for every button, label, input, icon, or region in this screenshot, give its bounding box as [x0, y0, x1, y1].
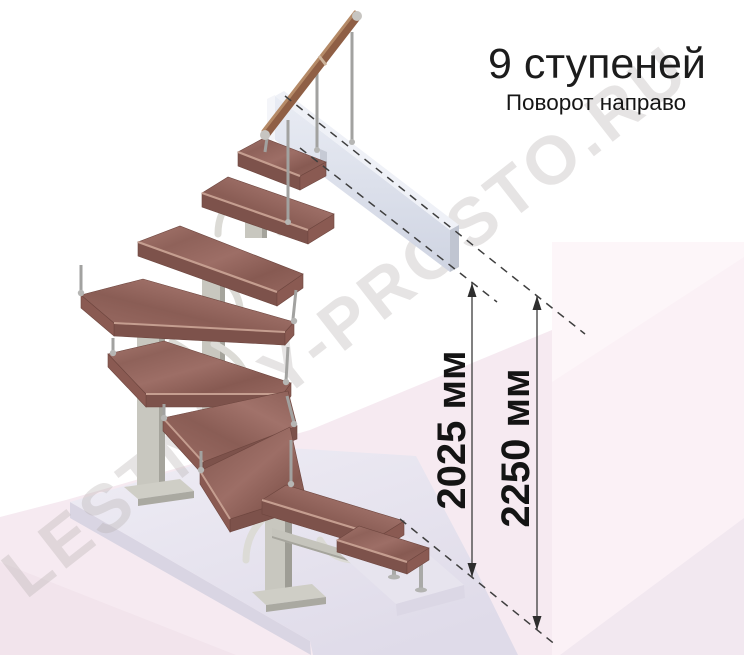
staircase-diagram-svg: LESTNICY-PROSTO.RU [0, 0, 744, 655]
dimension-label-2025: 2025 мм [430, 350, 474, 509]
handrail-end-cap [260, 130, 270, 140]
handrail-end-cap [352, 11, 362, 21]
page-title: 9 ступеней [488, 40, 706, 88]
dimension-label-2250: 2250 мм [494, 368, 538, 527]
header: 9 ступеней Поворот направо [488, 40, 706, 115]
staircase-diagram-page: LESTNICY-PROSTO.RU [0, 0, 744, 655]
page-subtitle: Поворот направо [506, 90, 686, 115]
